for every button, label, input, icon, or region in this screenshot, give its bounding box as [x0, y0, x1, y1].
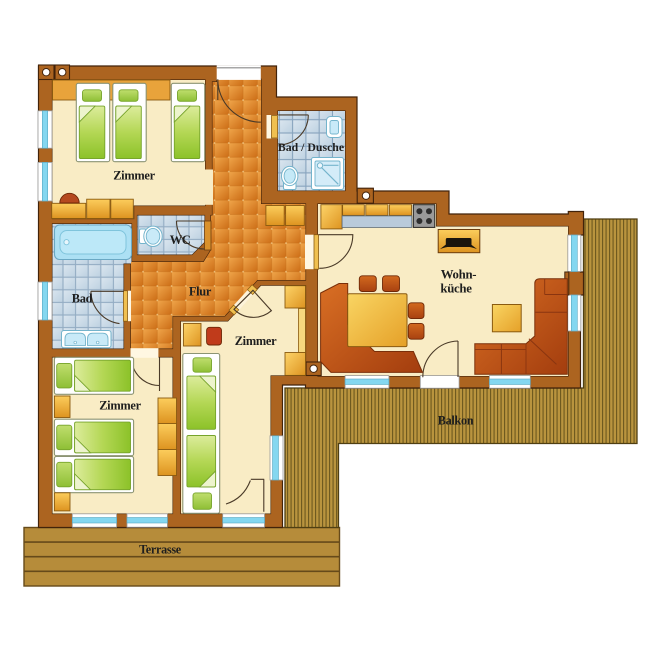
svg-text:Balkon: Balkon — [438, 414, 474, 428]
svg-text:Terrasse: Terrasse — [139, 543, 182, 557]
svg-text:Bad / Dusche: Bad / Dusche — [278, 140, 344, 154]
svg-text:Zimmer: Zimmer — [235, 334, 277, 348]
svg-text:Zimmer: Zimmer — [113, 169, 155, 183]
svg-text:küche: küche — [440, 282, 472, 296]
svg-text:WC: WC — [170, 233, 191, 247]
svg-text:Wohn-: Wohn- — [441, 268, 477, 282]
svg-text:Bad: Bad — [72, 292, 93, 306]
svg-text:Flur: Flur — [189, 285, 212, 299]
svg-text:Zimmer: Zimmer — [99, 399, 141, 413]
